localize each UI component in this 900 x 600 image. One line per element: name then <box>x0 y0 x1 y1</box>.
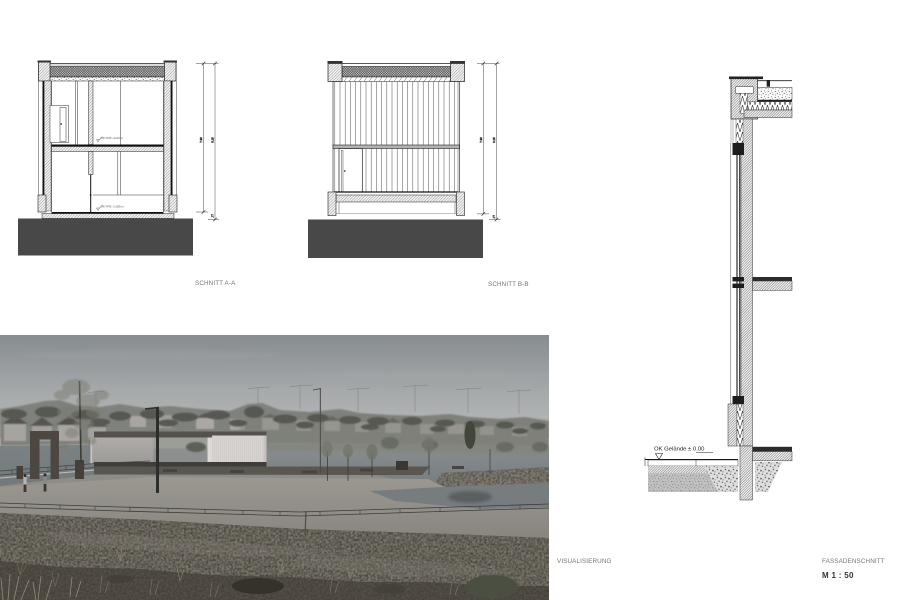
svg-text:7.38: 7.38 <box>199 137 203 143</box>
svg-text:OK FFB -1.085 m: OK FFB -1.085 m <box>101 205 125 209</box>
svg-text:OK FFB +0.00 m: OK FFB +0.00 m <box>101 136 124 140</box>
svg-text:OK Gelände ± 0.00: OK Gelände ± 0.00 <box>654 447 705 453</box>
svg-text:8.15: 8.15 <box>492 137 496 143</box>
svg-text:.77: .77 <box>211 214 215 218</box>
svg-text:7.38: 7.38 <box>479 137 483 143</box>
svg-text:.77: .77 <box>492 215 496 219</box>
svg-text:8.15: 8.15 <box>211 137 215 143</box>
